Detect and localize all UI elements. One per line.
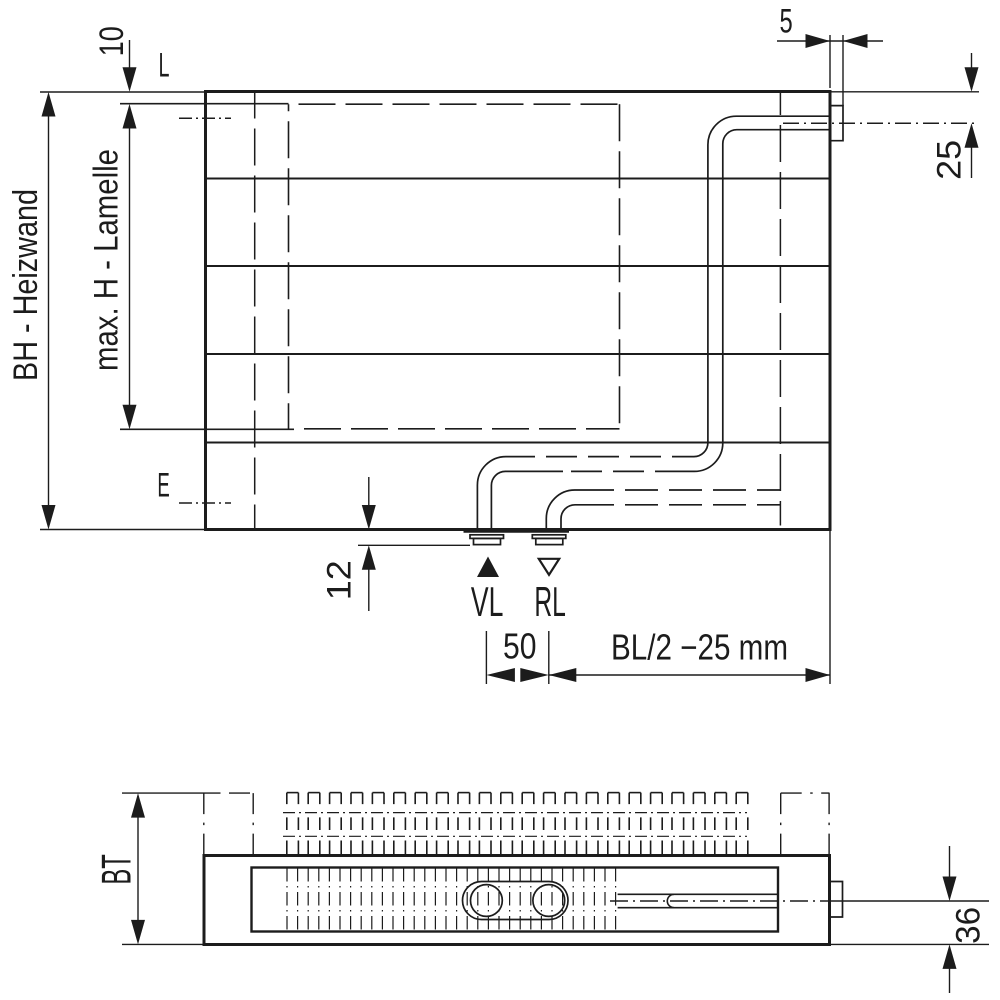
svg-text:VL: VL bbox=[471, 578, 504, 625]
svg-text:12: 12 bbox=[321, 560, 359, 600]
svg-text:25: 25 bbox=[931, 140, 969, 180]
svg-text:BH - Heizwand: BH - Heizwand bbox=[7, 189, 45, 381]
svg-text:50: 50 bbox=[503, 626, 537, 667]
svg-text:max. H - Lamelle: max. H - Lamelle bbox=[88, 149, 126, 371]
svg-text:5: 5 bbox=[780, 2, 793, 40]
svg-text:RL: RL bbox=[534, 578, 566, 625]
svg-text:E: E bbox=[157, 466, 169, 504]
svg-text:L: L bbox=[159, 47, 170, 85]
svg-text:BL/2 −25 mm: BL/2 −25 mm bbox=[611, 627, 788, 668]
svg-text:10: 10 bbox=[93, 26, 131, 56]
svg-text:BT: BT bbox=[92, 854, 139, 885]
svg-text:36: 36 bbox=[950, 907, 988, 944]
